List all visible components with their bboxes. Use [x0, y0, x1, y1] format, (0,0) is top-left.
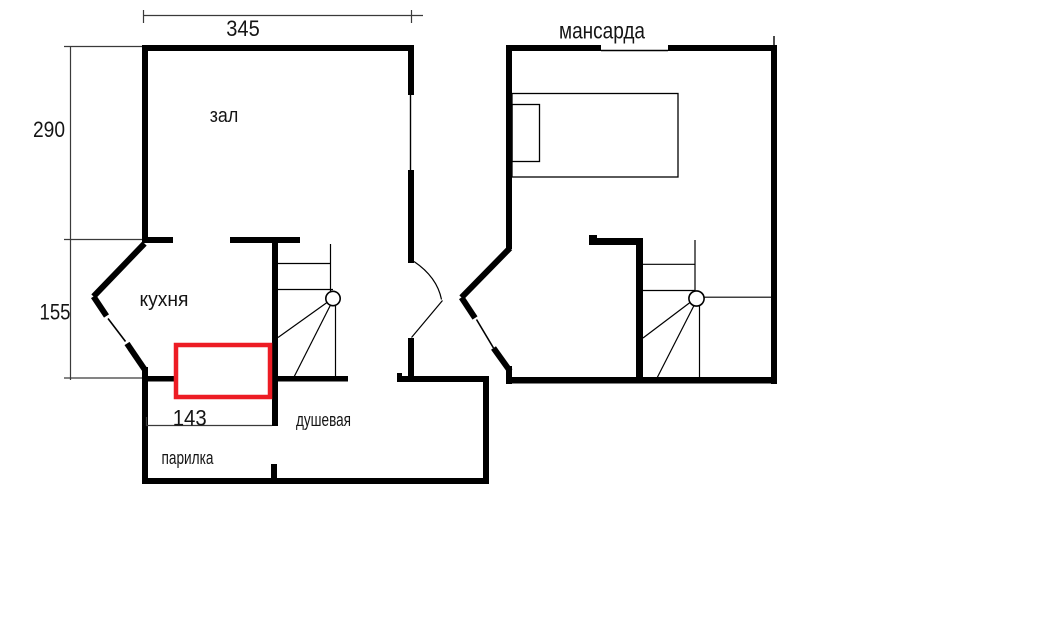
svg-text:кухня: кухня	[140, 289, 189, 311]
svg-text:парилка: парилка	[162, 448, 215, 468]
svg-text:зал: зал	[210, 105, 239, 127]
svg-text:143: 143	[173, 406, 207, 431]
svg-text:душевая: душевая	[296, 410, 351, 430]
svg-text:290: 290	[33, 117, 65, 142]
svg-text:155: 155	[40, 300, 71, 325]
svg-text:345: 345	[226, 16, 260, 41]
svg-text:мансарда: мансарда	[559, 18, 645, 44]
